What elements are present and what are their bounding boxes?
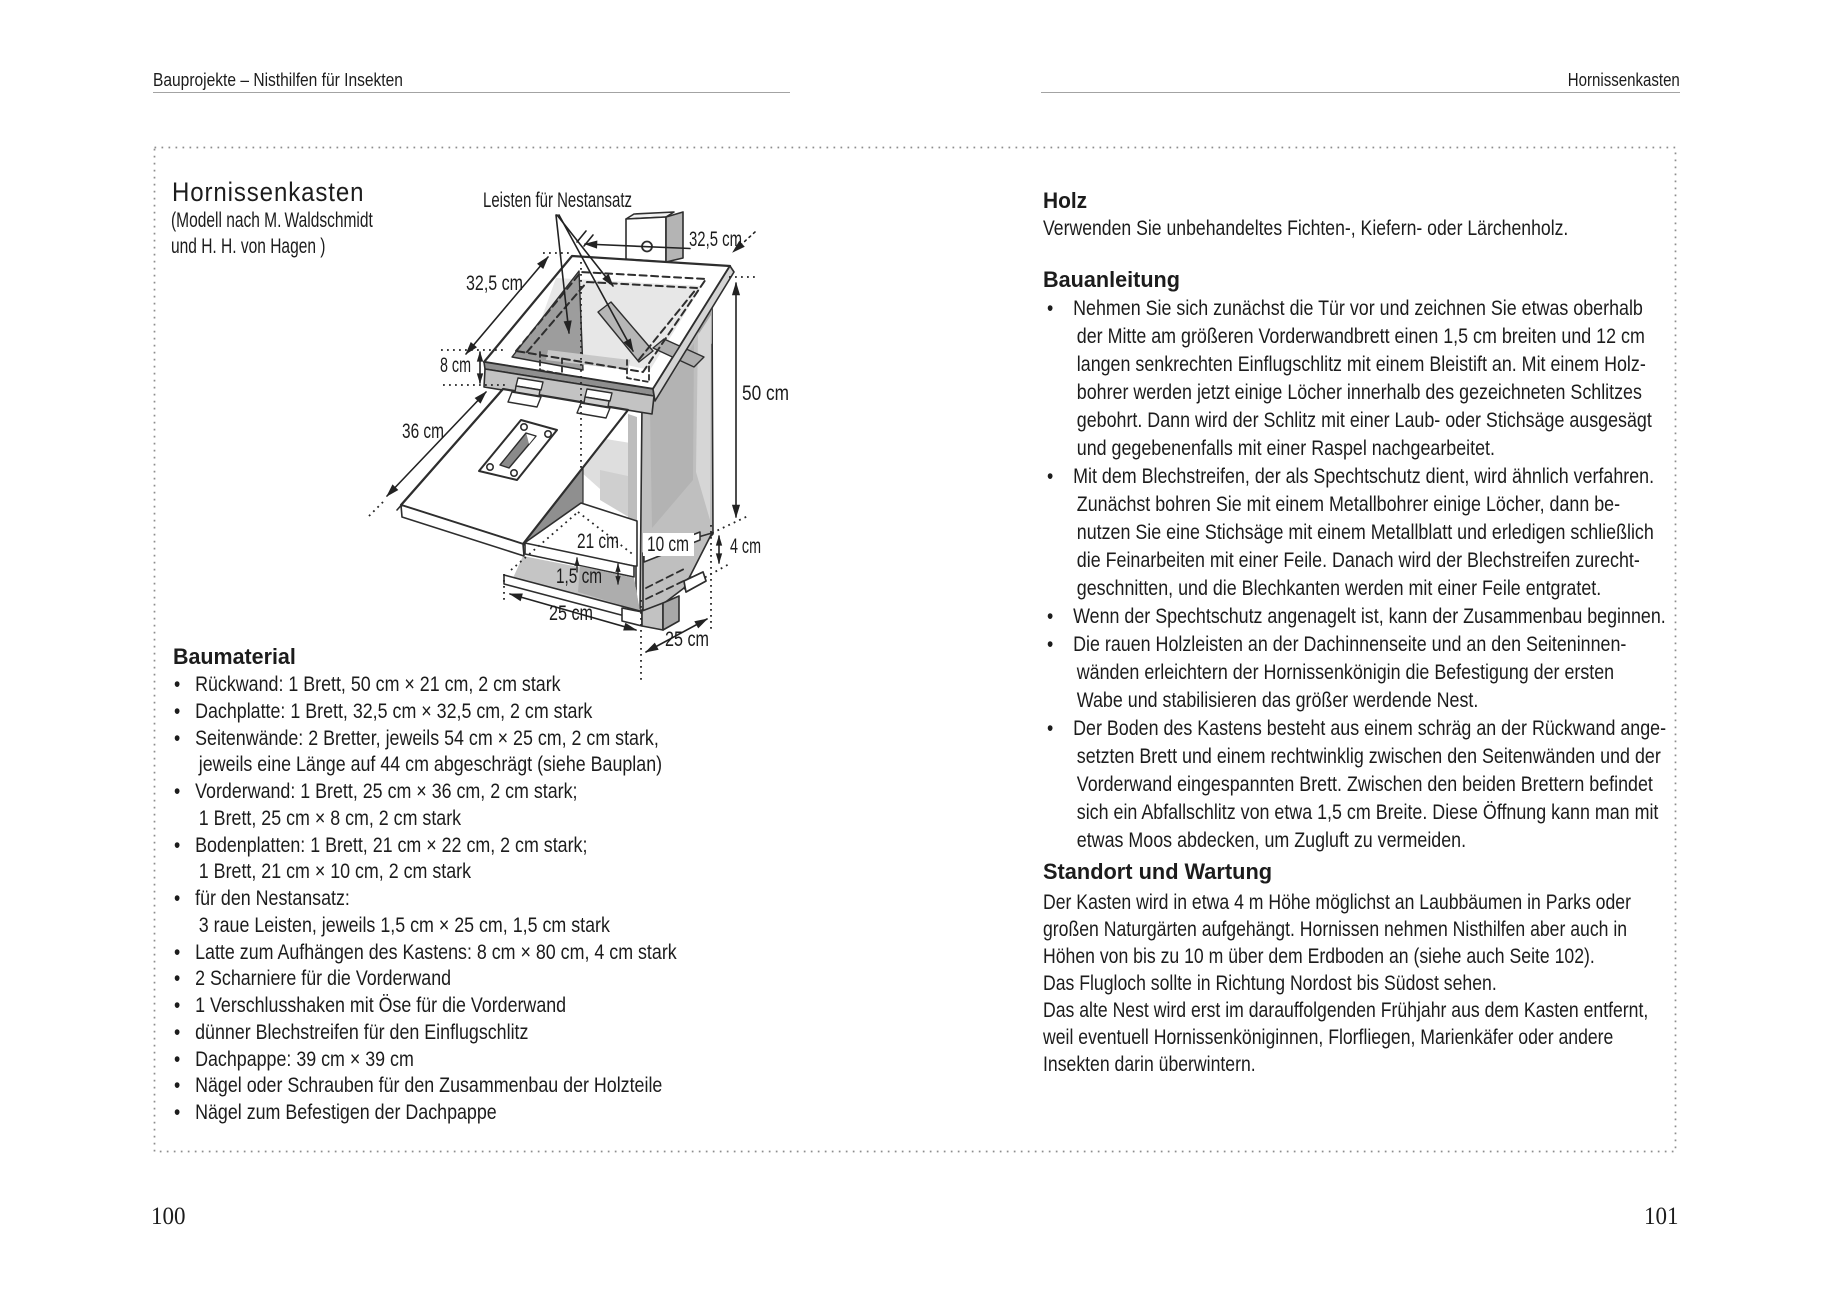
svg-text:Leisten für Nestansatz: Leisten für Nestansatz: [483, 188, 632, 212]
svg-text:10 cm: 10 cm: [647, 532, 689, 556]
svg-text:32,5 cm: 32,5 cm: [466, 271, 523, 295]
svg-text:32,5 cm: 32,5 cm: [689, 227, 742, 251]
svg-text:25 cm: 25 cm: [549, 601, 593, 625]
svg-text:25 cm: 25 cm: [665, 627, 709, 651]
svg-text:4 cm: 4 cm: [730, 534, 761, 558]
svg-text:21 cm: 21 cm: [577, 529, 619, 553]
svg-text:1,5 cm: 1,5 cm: [556, 564, 602, 588]
svg-text:50 cm: 50 cm: [742, 381, 789, 405]
svg-text:36 cm: 36 cm: [402, 419, 444, 443]
svg-text:8 cm: 8 cm: [440, 353, 471, 377]
